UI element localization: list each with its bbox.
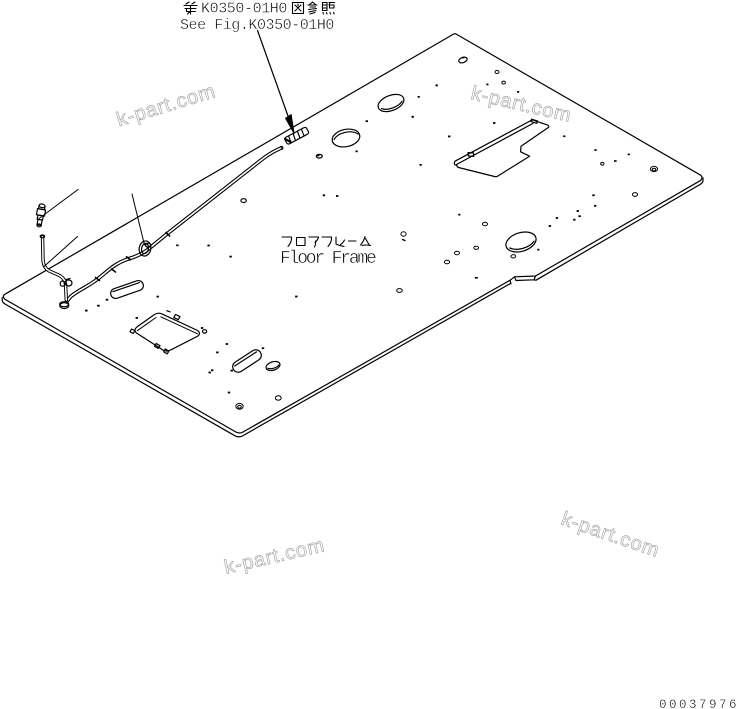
svg-text:k-part.com: k-part.com — [114, 80, 218, 131]
svg-text:See Fig.K0350-01H0: See Fig.K0350-01H0 — [180, 17, 334, 34]
svg-text:k-part.com: k-part.com — [469, 82, 574, 126]
svg-text:00037976: 00037976 — [659, 698, 737, 709]
svg-text:K0350-01H0: K0350-01H0 — [201, 1, 287, 18]
svg-text:Floor Frame: Floor Frame — [280, 249, 376, 269]
svg-text:k-part.com: k-part.com — [222, 534, 327, 578]
svg-text:k-part.com: k-part.com — [558, 508, 662, 562]
